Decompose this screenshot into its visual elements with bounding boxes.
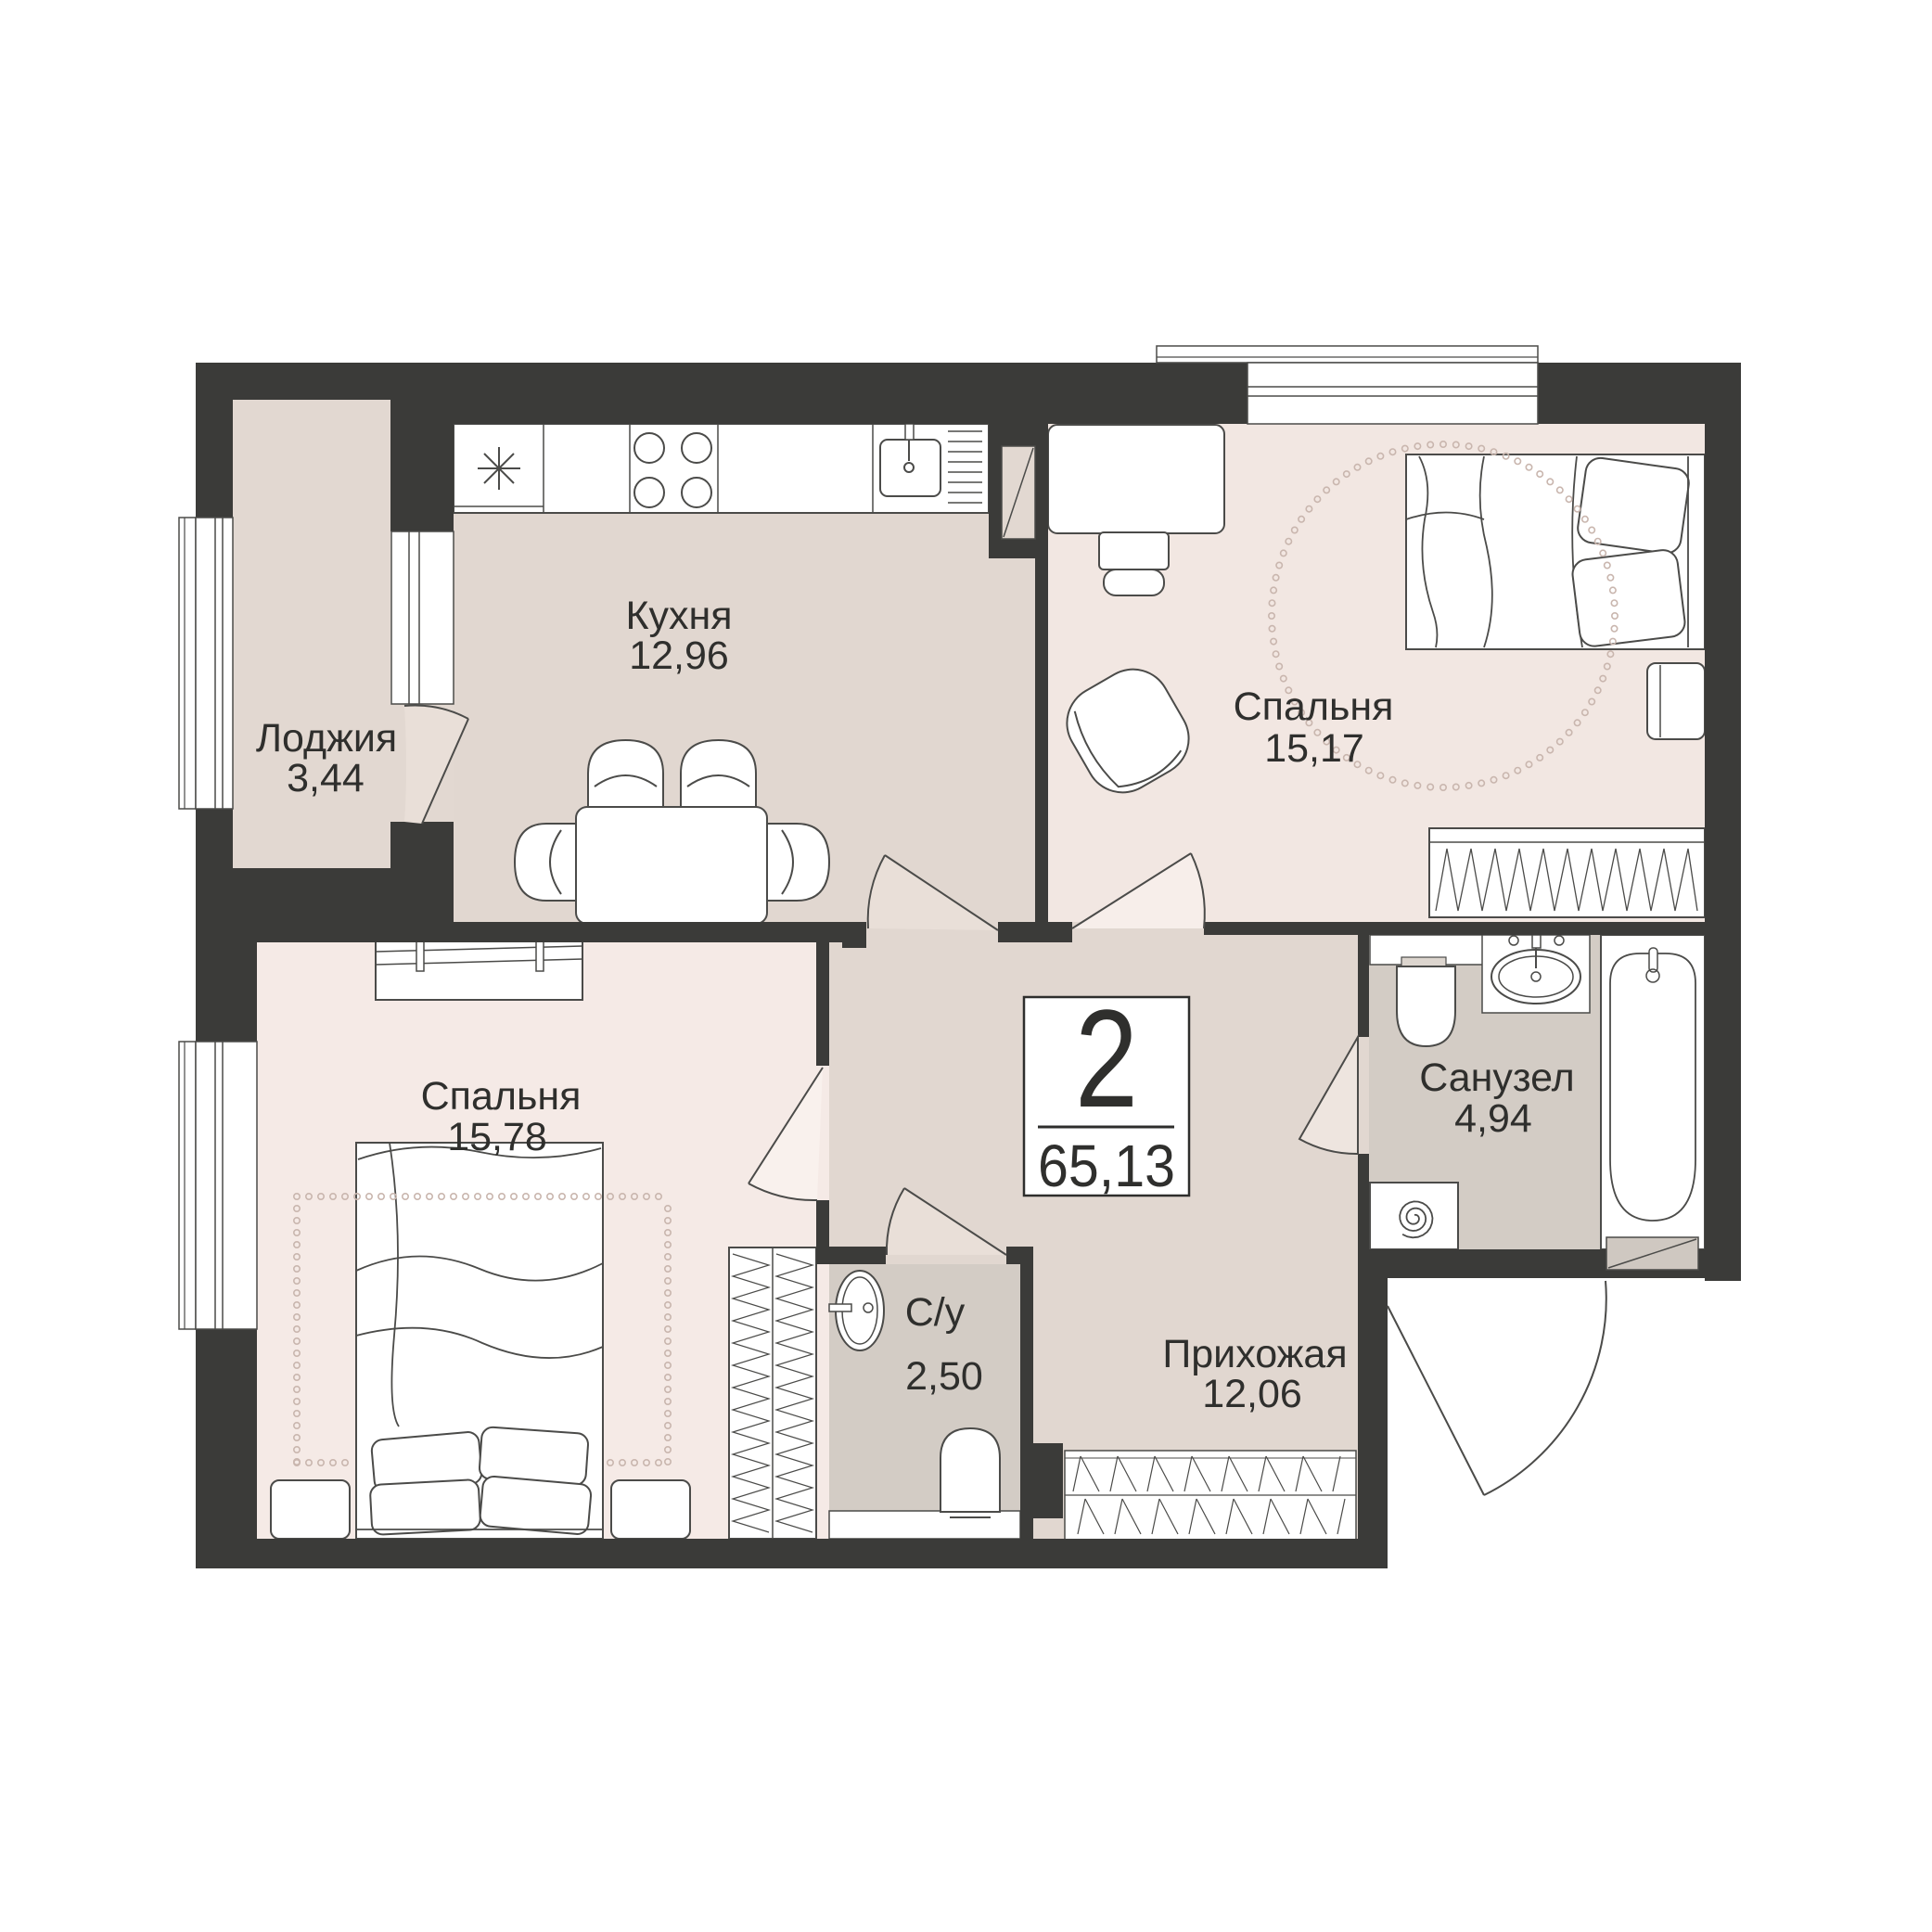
svg-text:2: 2 — [1075, 980, 1138, 1136]
svg-text:Лоджия: Лоджия — [256, 716, 397, 761]
svg-text:2,50: 2,50 — [905, 1354, 983, 1399]
svg-text:15,17: 15,17 — [1264, 726, 1364, 771]
svg-text:С/у: С/у — [905, 1290, 966, 1335]
svg-text:15,78: 15,78 — [447, 1115, 547, 1159]
svg-text:Кухня: Кухня — [625, 594, 732, 638]
svg-text:Спальня: Спальня — [421, 1074, 582, 1119]
svg-text:3,44: 3,44 — [287, 756, 365, 800]
svg-text:12,06: 12,06 — [1202, 1372, 1302, 1416]
svg-text:65,13: 65,13 — [1038, 1132, 1175, 1199]
svg-text:Санузел: Санузел — [1419, 1056, 1575, 1100]
svg-text:Спальня: Спальня — [1234, 685, 1394, 729]
svg-text:Прихожая: Прихожая — [1162, 1332, 1347, 1376]
svg-text:4,94: 4,94 — [1454, 1096, 1532, 1141]
svg-text:12,96: 12,96 — [629, 633, 729, 678]
